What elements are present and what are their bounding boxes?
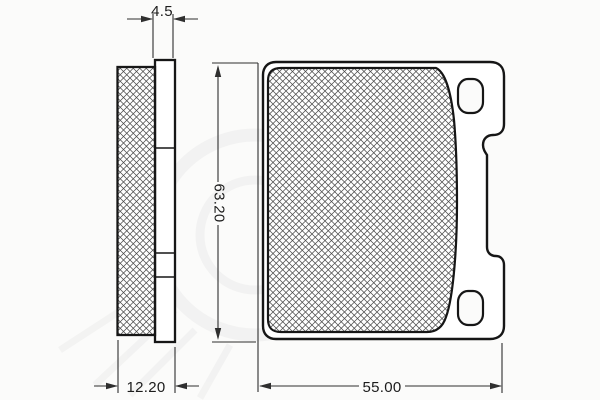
side-view-friction-material <box>118 67 156 335</box>
side-view <box>118 60 176 342</box>
technical-drawing-canvas: 4.5 12.20 63.20 55.00 <box>0 0 600 400</box>
dim-backplate-thickness-label: 4.5 <box>151 3 173 20</box>
upper-mounting-hole <box>458 79 483 113</box>
dim-pad-height-label: 63.20 <box>211 183 228 222</box>
drawing-page: 4.5 12.20 63.20 55.00 <box>0 0 600 400</box>
dim-pad-width-label: 55.00 <box>362 379 401 396</box>
lower-mounting-hole <box>458 291 483 325</box>
dim-backplate-thickness <box>127 14 198 58</box>
side-view-backplate <box>155 60 175 342</box>
dim-pad-height <box>212 63 258 392</box>
front-view <box>263 62 504 339</box>
dim-total-thickness-label: 12.20 <box>126 379 165 396</box>
